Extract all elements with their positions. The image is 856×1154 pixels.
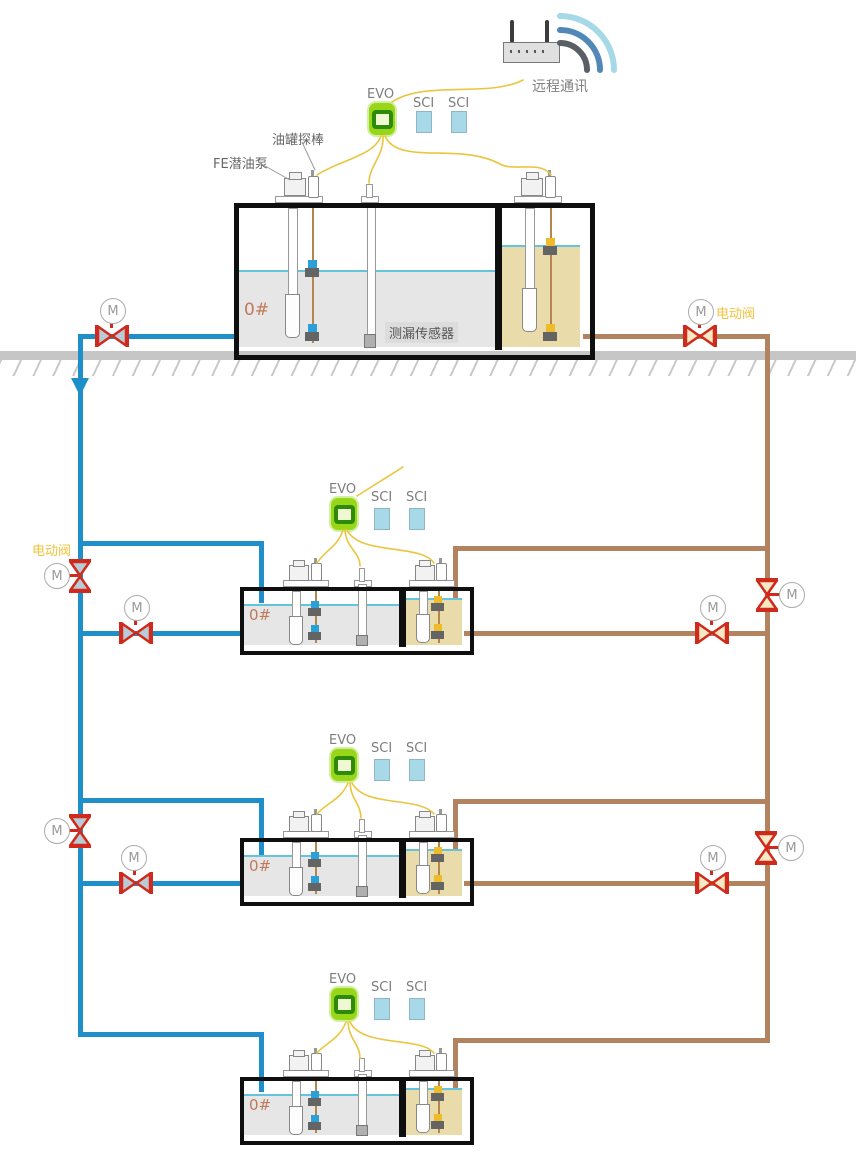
motor-valve <box>695 622 729 644</box>
motor-valve <box>69 814 91 848</box>
pipe-gasoline-top <box>583 334 770 339</box>
flow-arrow-icon <box>71 378 89 396</box>
submersible-pump-head <box>521 178 543 196</box>
sci-module-label: SCI <box>371 741 392 756</box>
sci-module-label: SCI <box>413 96 434 111</box>
motor-symbol: M <box>131 601 142 616</box>
probe-stem <box>439 809 442 814</box>
tank-manway-flange <box>283 1070 329 1077</box>
motor-symbol: M <box>695 305 706 320</box>
tank-probe-head <box>436 814 447 832</box>
pump-junction <box>419 1050 431 1057</box>
motor-valve <box>755 831 777 865</box>
leak-sensor-stem <box>359 819 365 833</box>
submersible-pump-head <box>289 1055 309 1071</box>
grade-label: 0# <box>244 300 269 320</box>
motor-valve <box>683 325 717 347</box>
submersible-pump-head <box>415 816 435 832</box>
evo-screen <box>334 505 355 524</box>
grade-label: 0# <box>249 857 271 875</box>
tank-probe-head <box>545 176 556 198</box>
router-antenna <box>510 20 514 44</box>
sci-module <box>409 998 425 1020</box>
motor-symbol: M <box>786 588 797 603</box>
wifi-signal-icon <box>560 16 614 70</box>
motor-valve-circle: M <box>44 563 70 589</box>
router-leds <box>510 50 550 53</box>
probe-label: 油罐探棒 <box>272 129 324 148</box>
sci-module <box>374 998 390 1020</box>
fuel-tank <box>240 587 474 655</box>
pump-junction <box>293 811 305 818</box>
evo-console-label: EVO <box>329 482 356 497</box>
tank-station-row: EVO SCI SCI 0 <box>0 480 856 675</box>
ground-hatch <box>0 360 856 376</box>
sci-module <box>409 759 425 781</box>
motor-symbol: M <box>107 304 118 319</box>
tank-manway-flange <box>283 580 329 587</box>
motor-symbol: M <box>785 841 796 856</box>
evo-screen <box>334 756 355 775</box>
evo-console <box>331 749 357 781</box>
tank-probe-head <box>311 1053 322 1071</box>
motor-valve <box>756 578 778 612</box>
submersible-pump-head <box>284 178 306 196</box>
motor-valve <box>695 872 729 894</box>
tank-manway-flange <box>409 580 455 587</box>
leak-sensor-stem <box>359 1058 365 1072</box>
motor-symbol: M <box>51 569 62 584</box>
evo-console-label: EVO <box>329 733 356 748</box>
pump-junction <box>289 172 302 180</box>
tank-probe-head <box>436 1053 447 1071</box>
tank-station-row: EVO SCI SCI 0 <box>0 970 856 1154</box>
tank-station-row: EVO SCI SCI 0 <box>0 731 856 926</box>
tank-probe-head <box>311 814 322 832</box>
motor-valve-circle: M <box>121 845 147 871</box>
tank-probe-head <box>308 176 319 198</box>
submersible-pump-head <box>289 565 309 581</box>
tank-probe-head <box>311 563 322 581</box>
pump-junction <box>419 811 431 818</box>
motor-valve-circle: M <box>700 595 726 621</box>
motor-valve-circle: M <box>124 595 150 621</box>
submersible-pump-head <box>289 816 309 832</box>
electric-valve-label: 电动阀 <box>716 303 755 322</box>
leak-sensor-label: 测漏传感器 <box>385 322 458 343</box>
tank-probe-head <box>436 563 447 581</box>
remote-comm-label: 远程通讯 <box>532 76 588 96</box>
sci-module-label: SCI <box>371 980 392 995</box>
sci-module <box>374 508 390 530</box>
motor-valve <box>69 559 91 593</box>
leak-sensor-stem <box>366 184 373 198</box>
motor-valve-circle: M <box>100 298 126 324</box>
sci-module-label: SCI <box>406 490 427 505</box>
probe-stem <box>314 1048 317 1053</box>
motor-symbol: M <box>51 824 62 839</box>
grade-label: 0# <box>249 606 271 624</box>
motor-valve <box>95 325 129 347</box>
submersible-pump-head <box>415 1055 435 1071</box>
probe-stem <box>439 558 442 563</box>
sci-module <box>416 111 432 133</box>
evo-console <box>369 103 395 135</box>
evo-screen <box>334 995 355 1014</box>
sci-module <box>451 111 467 133</box>
evo-console <box>331 988 357 1020</box>
pipe-gasoline-main <box>765 334 770 1043</box>
submersible-pump-head <box>415 565 435 581</box>
probe-stem <box>311 170 314 176</box>
motor-symbol: M <box>707 851 718 866</box>
evo-console-label: EVO <box>329 972 356 987</box>
probe-stem <box>314 809 317 814</box>
pump-junction <box>526 172 539 180</box>
motor-valve-circle: M <box>778 835 804 861</box>
evo-screen <box>372 110 393 129</box>
sci-module-label: SCI <box>448 96 469 111</box>
electric-valve-label: 电动阀 <box>32 540 71 559</box>
motor-valve <box>119 622 153 644</box>
fuel-station-diagram: 远程通讯 EVO SCI SCI FE潜油泵 油罐探棒 0# 测漏传感器 M <box>0 0 856 1154</box>
motor-valve-circle: M <box>700 845 726 871</box>
tank-manway-flange <box>283 831 329 838</box>
leak-sensor-stem <box>359 568 365 582</box>
fuel-tank <box>240 838 474 906</box>
probe-stem <box>314 558 317 563</box>
evo-console <box>331 498 357 530</box>
evo-console-label: EVO <box>367 87 394 102</box>
motor-symbol: M <box>707 601 718 616</box>
probe-stem <box>548 170 551 176</box>
motor-valve-circle: M <box>44 818 70 844</box>
pump-junction <box>293 560 305 567</box>
pump-label: FE潜油泵 <box>213 153 268 172</box>
sci-module-label: SCI <box>406 980 427 995</box>
router-antenna <box>545 20 549 44</box>
motor-valve-circle: M <box>779 582 805 608</box>
motor-valve <box>119 872 153 894</box>
motor-symbol: M <box>128 851 139 866</box>
sci-module-label: SCI <box>371 490 392 505</box>
motor-valve-circle: M <box>688 299 714 325</box>
tank-manway-flange <box>409 831 455 838</box>
sci-module <box>409 508 425 530</box>
pump-junction <box>293 1050 305 1057</box>
pipe-diesel-main <box>78 334 83 1037</box>
sci-module-label: SCI <box>406 741 427 756</box>
pump-junction <box>419 560 431 567</box>
sci-module <box>374 759 390 781</box>
fuel-tank <box>240 1077 474 1145</box>
tank-manway-flange <box>409 1070 455 1077</box>
probe-stem <box>439 1048 442 1053</box>
grade-label: 0# <box>249 1096 271 1114</box>
